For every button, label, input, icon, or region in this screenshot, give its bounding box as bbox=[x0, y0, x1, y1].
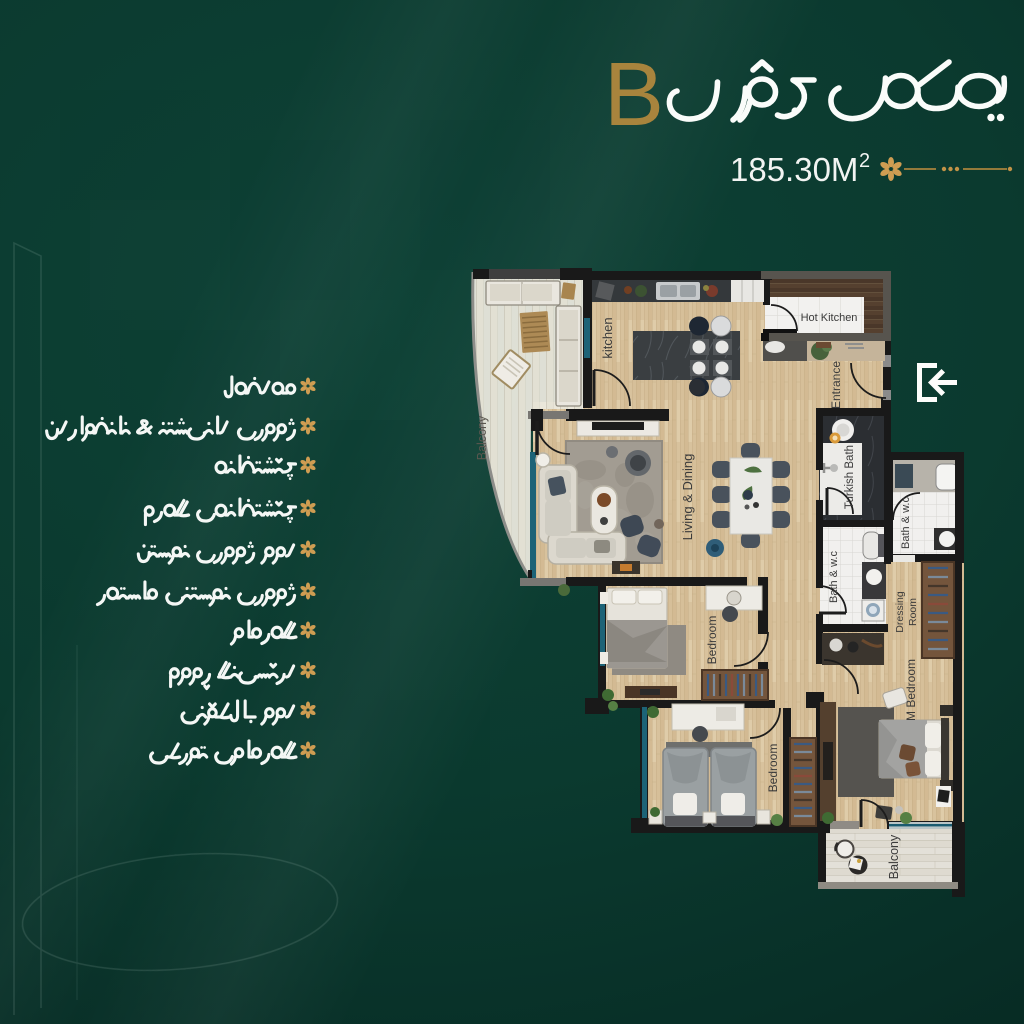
svg-text:Balcony: Balcony bbox=[887, 834, 901, 879]
svg-text:kitchen: kitchen bbox=[600, 317, 615, 358]
svg-text:M Bedroom: M Bedroom bbox=[904, 659, 918, 721]
svg-text:Bath & w.c: Bath & w.c bbox=[900, 497, 912, 549]
svg-text:2: 2 bbox=[859, 150, 870, 172]
svg-text:Bedroom: Bedroom bbox=[766, 744, 780, 793]
svg-text:Turkish Bath: Turkish Bath bbox=[844, 445, 856, 509]
svg-text:Dressing: Dressing bbox=[894, 591, 906, 633]
svg-text:Balcony: Balcony bbox=[475, 415, 489, 460]
svg-text:185.30M: 185.30M bbox=[730, 151, 858, 188]
svg-text:Entrance: Entrance bbox=[829, 361, 843, 409]
svg-text:Bedroom: Bedroom bbox=[705, 616, 719, 665]
svg-text:Hot Kitchen: Hot Kitchen bbox=[801, 312, 858, 324]
svg-text:B: B bbox=[604, 45, 664, 145]
svg-text:Bath & w.c: Bath & w.c bbox=[828, 551, 840, 603]
svg-text:Living & Dining: Living & Dining bbox=[680, 454, 695, 541]
svg-text:Room: Room bbox=[907, 598, 919, 626]
